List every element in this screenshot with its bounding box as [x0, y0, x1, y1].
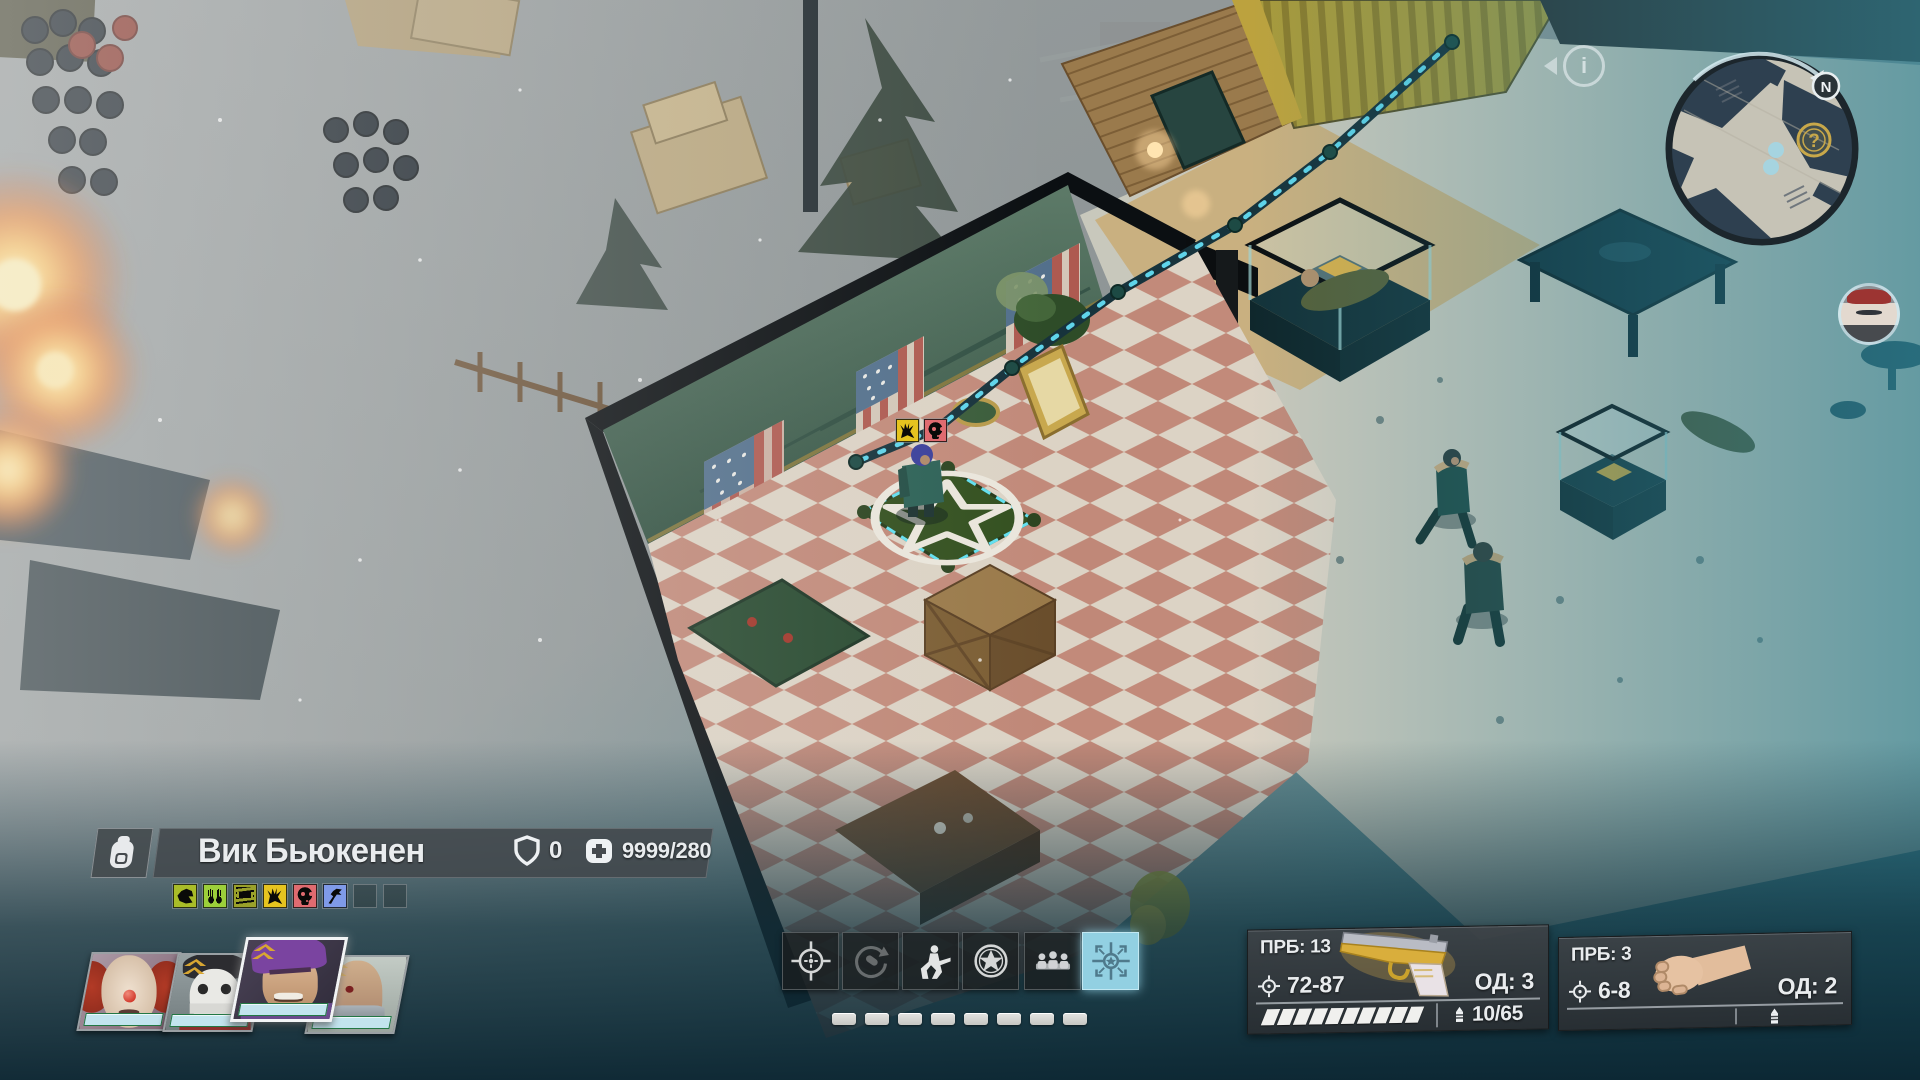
- star-circle-icon: [968, 938, 1014, 984]
- ammo-bar: [1264, 1007, 1421, 1026]
- penetration-label: ПРБ: 13: [1260, 936, 1331, 959]
- ap-pip: [1030, 1013, 1054, 1025]
- ap-pip: [898, 1013, 922, 1025]
- collapse-arrow-icon: [1544, 57, 1557, 75]
- ap-pip: [931, 1013, 955, 1025]
- inventory-button[interactable]: [90, 828, 153, 878]
- primary-weapon-panel[interactable]: ПРБ: 13 72-87 ОД: 3 10/65: [1247, 924, 1549, 1034]
- penetration-label: ПРБ: 3: [1571, 944, 1631, 967]
- shield-icon: [514, 835, 540, 867]
- status-effect-tomahawk-icon: [323, 884, 347, 908]
- info-button[interactable]: i: [1544, 44, 1614, 88]
- backpack-icon: [104, 835, 139, 871]
- status-effect-stunned-face-icon: [293, 884, 317, 908]
- damage-reticle-icon: [1258, 975, 1280, 997]
- status-effect-raised-hands-icon: [203, 884, 227, 908]
- medkit-icon: [584, 837, 614, 865]
- levelup-chevron-icon: [251, 944, 276, 962]
- reticle-icon: [788, 938, 834, 984]
- crouch-button[interactable]: [902, 932, 959, 990]
- offscreen-companion-marker[interactable]: [1838, 283, 1900, 345]
- ammo-segment: [1405, 1007, 1424, 1023]
- bullet-icon: [1454, 1006, 1465, 1024]
- character-name: Вик Бьюкенен: [198, 832, 425, 871]
- health-indicator: 9999/280: [584, 837, 711, 865]
- crouch-soldier-icon: [908, 938, 954, 984]
- ap-pip: [964, 1013, 988, 1025]
- fist-image: [1641, 940, 1761, 1001]
- attack-reticle-button[interactable]: [782, 932, 839, 990]
- ap-pip: [832, 1013, 856, 1025]
- damage-indicator: 6-8: [1569, 977, 1630, 1005]
- armor-indicator: 0: [514, 835, 562, 867]
- minimap-party-dot: [1763, 159, 1779, 175]
- ap-pip: [997, 1013, 1021, 1025]
- player-buff-icons: [896, 419, 947, 442]
- ammo-count: 10/65: [1454, 1002, 1523, 1027]
- levelup-chevron-icon: [182, 959, 207, 977]
- svg-text:?: ?: [1808, 131, 1820, 152]
- portrait-vic-buchanan[interactable]: [230, 937, 349, 1022]
- damage-indicator: 72-87: [1258, 971, 1344, 1000]
- status-effect-claw-icon: [263, 884, 287, 908]
- minimap[interactable]: ? N: [1664, 50, 1860, 246]
- ambush-mode-button[interactable]: [1082, 932, 1139, 990]
- reload-button[interactable]: [842, 932, 899, 990]
- skills-star-button[interactable]: [962, 932, 1019, 990]
- ap-cost: ОД: 2: [1778, 972, 1837, 1000]
- bullet-icon: [1769, 1007, 1780, 1025]
- status-effect-bandaged-icon: [233, 884, 257, 908]
- ambush-icon: [1088, 938, 1134, 984]
- svg-text:N: N: [1821, 79, 1832, 96]
- status-effect-empty-slot: [383, 884, 407, 908]
- secondary-weapon-panel[interactable]: ПРБ: 3 6-8 ОД: 2: [1558, 931, 1852, 1031]
- ap-pip: [865, 1013, 889, 1025]
- info-icon: i: [1563, 45, 1605, 87]
- game-screen: i ?: [0, 0, 1920, 1080]
- companion-portrait: [1847, 289, 1892, 304]
- status-effect-empty-slot: [353, 884, 377, 908]
- ap-pip: [1063, 1013, 1087, 1025]
- ap-cost: ОД: 3: [1475, 968, 1534, 996]
- squad-icon: [1030, 938, 1076, 984]
- minimap-question-marker[interactable]: ?: [1798, 124, 1830, 156]
- minimap-party-dot: [1768, 142, 1784, 158]
- status-effect-claw-icon: [896, 419, 919, 442]
- character-panel: Вик Бьюкенен 0 9999/280: [94, 826, 734, 946]
- status-effects-row: [173, 884, 407, 908]
- action-point-pips: [832, 1013, 1087, 1025]
- squad-formation-button[interactable]: [1024, 932, 1081, 990]
- health-bar: [238, 1003, 329, 1016]
- golden-pistol-image: [1326, 927, 1476, 1000]
- status-effect-beast-bite-icon: [173, 884, 197, 908]
- damage-reticle-icon: [1569, 980, 1591, 1002]
- status-effect-stunned-face-icon: [924, 419, 947, 442]
- ammo-count: [1769, 1007, 1787, 1025]
- reload-icon: [848, 938, 894, 984]
- health-bar: [83, 1013, 164, 1026]
